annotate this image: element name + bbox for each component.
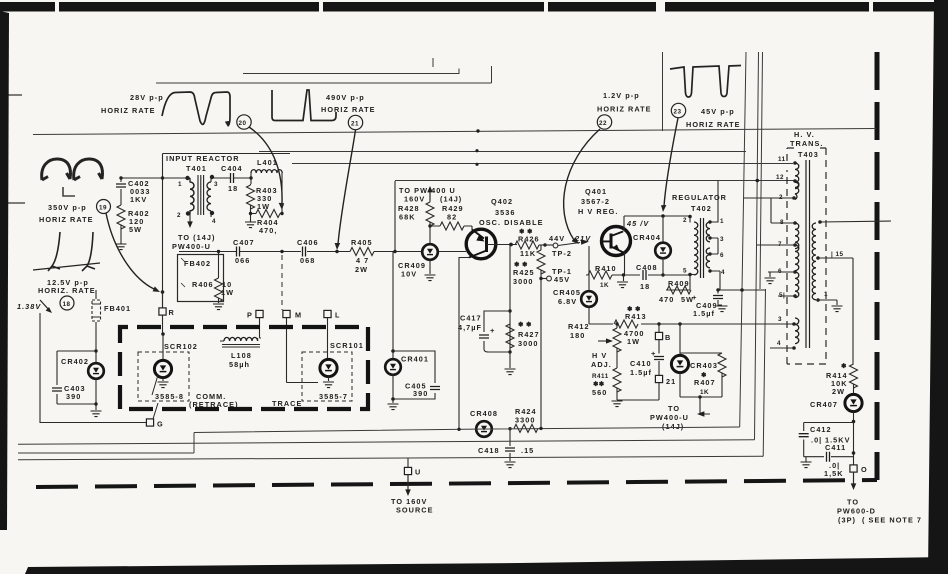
svg-text:19: 19 (99, 205, 107, 212)
svg-text:28V p-p: 28V p-p (130, 93, 164, 102)
svg-text:H V: H V (592, 351, 607, 360)
svg-text:(3P): (3P) (838, 516, 856, 525)
svg-text:2W: 2W (832, 387, 845, 396)
svg-text:C406: C406 (297, 238, 319, 247)
svg-text:3: 3 (214, 181, 218, 188)
svg-text:P: P (247, 311, 253, 320)
svg-text:REGULATOR: REGULATOR (672, 193, 727, 202)
svg-text:C412: C412 (810, 425, 832, 434)
svg-text:L401: L401 (257, 158, 278, 167)
svg-text:FB402: FB402 (184, 259, 211, 268)
svg-text:R409: R409 (668, 279, 690, 288)
svg-text:490V p-p: 490V p-p (326, 93, 365, 102)
svg-text:068: 068 (300, 256, 315, 265)
svg-text:3000: 3000 (518, 339, 538, 348)
svg-text:HORIZ RATE: HORIZ RATE (39, 215, 94, 224)
svg-text:3300: 3300 (515, 416, 535, 425)
svg-text:SOURCE: SOURCE (396, 506, 434, 515)
svg-text:| 15: | 15 (831, 251, 844, 258)
svg-text:350V p-p: 350V p-p (48, 203, 87, 212)
svg-text:1W: 1W (221, 288, 234, 297)
svg-text:1: 1 (178, 181, 182, 188)
svg-text:6: 6 (720, 252, 724, 259)
svg-text:R412: R412 (568, 322, 590, 331)
svg-text:TO (14J): TO (14J) (178, 233, 215, 242)
svg-text:M: M (295, 311, 302, 320)
svg-text:C417: C417 (460, 314, 482, 323)
svg-text:(14J): (14J) (440, 195, 462, 204)
svg-text:23: 23 (674, 109, 682, 116)
svg-text:HORIZ RATE: HORIZ RATE (686, 120, 741, 129)
svg-text:SCR101: SCR101 (330, 341, 364, 350)
svg-text:TRANS.: TRANS. (790, 139, 823, 148)
svg-text:390: 390 (413, 389, 428, 398)
svg-text:CR403: CR403 (690, 361, 718, 370)
svg-text:T402: T402 (691, 204, 712, 213)
svg-text:G: G (157, 420, 164, 429)
svg-text:R426: R426 (518, 235, 540, 244)
svg-text:TP-2: TP-2 (552, 249, 572, 258)
svg-text:58µh: 58µh (229, 360, 250, 369)
svg-text:Q401: Q401 (585, 187, 607, 196)
svg-text:H. V.: H. V. (794, 130, 815, 139)
svg-text:45 /V: 45 /V (626, 219, 649, 228)
svg-text:4: 4 (721, 269, 725, 276)
svg-text:CR408: CR408 (470, 409, 498, 418)
svg-text:1.5µf: 1.5µf (693, 309, 715, 318)
svg-text:18: 18 (228, 184, 238, 193)
svg-text:1K: 1K (700, 389, 709, 396)
svg-text:1KV: 1KV (130, 195, 147, 204)
svg-text:C410: C410 (630, 359, 652, 368)
svg-text:5: 5 (683, 268, 687, 275)
svg-text:TO: TO (847, 498, 859, 507)
svg-text:1: 1 (824, 291, 828, 298)
svg-text:44V: 44V (549, 234, 565, 243)
svg-text:45V: 45V (554, 275, 570, 284)
svg-text:4,7µF: 4,7µF (458, 323, 482, 332)
svg-text:11: 11 (778, 156, 786, 163)
svg-text:3: 3 (778, 316, 782, 323)
svg-text:SCR102: SCR102 (164, 342, 198, 351)
svg-text:4 7: 4 7 (356, 256, 369, 265)
svg-text:3536: 3536 (495, 208, 515, 217)
svg-text:INPUT REACTOR: INPUT REACTOR (166, 154, 240, 163)
svg-text:12: 12 (776, 174, 784, 181)
svg-text:390: 390 (66, 392, 81, 401)
svg-text:Q402: Q402 (491, 197, 513, 206)
svg-text:560: 560 (592, 388, 607, 397)
svg-text:PW600-D: PW600-D (837, 507, 876, 516)
svg-text:OSC. DISABLE: OSC. DISABLE (479, 218, 544, 227)
svg-text:470,: 470, (259, 226, 277, 235)
svg-text:180: 180 (570, 331, 585, 340)
svg-text:C404: C404 (221, 164, 243, 173)
svg-text:1.5µf: 1.5µf (630, 368, 652, 377)
svg-text:3585-8: 3585-8 (155, 392, 184, 401)
svg-text:CR402: CR402 (61, 357, 89, 366)
svg-text:TO: TO (668, 404, 680, 413)
svg-text:2W: 2W (355, 265, 368, 274)
svg-text:R: R (169, 308, 175, 317)
svg-text:ADJ.: ADJ. (591, 360, 612, 369)
svg-text:H V REG.: H V REG. (578, 207, 618, 216)
svg-text:HORIZ. RATE: HORIZ. RATE (38, 286, 96, 295)
svg-text:C408: C408 (636, 263, 658, 272)
svg-text:5W: 5W (129, 225, 142, 234)
svg-text:68K: 68K (399, 213, 416, 222)
svg-text:R405: R405 (351, 238, 373, 247)
svg-text:18: 18 (640, 282, 650, 291)
svg-text:R407: R407 (694, 378, 716, 387)
svg-text:2: 2 (683, 217, 687, 224)
svg-text:(RETRACE): (RETRACE) (189, 400, 239, 409)
svg-text:21: 21 (351, 121, 359, 128)
svg-text:CR405: CR405 (553, 288, 581, 297)
svg-text:3: 3 (720, 236, 724, 243)
svg-text:3567-2: 3567-2 (581, 197, 610, 206)
svg-text:.15: .15 (521, 446, 534, 455)
svg-text:C407: C407 (233, 238, 255, 247)
svg-text:22: 22 (599, 120, 607, 127)
svg-text:HORIZ RATE: HORIZ RATE (321, 105, 376, 114)
svg-text:L108: L108 (231, 351, 252, 360)
svg-text:U: U (415, 468, 421, 477)
svg-text:066: 066 (235, 256, 250, 265)
svg-text:✽ ✽: ✽ ✽ (518, 322, 532, 329)
svg-text:18: 18 (63, 301, 71, 308)
svg-text:160V: 160V (404, 195, 425, 204)
svg-text:+: + (490, 326, 495, 335)
svg-text:21: 21 (666, 377, 676, 386)
svg-text:✽✽: ✽✽ (593, 381, 605, 388)
svg-text:CR404: CR404 (633, 233, 661, 242)
svg-text:1.2V p-p: 1.2V p-p (603, 91, 640, 100)
svg-text:FB401: FB401 (104, 304, 131, 313)
svg-text:.0|: .0| (811, 436, 822, 445)
svg-text:( SEE NOTE 7: ( SEE NOTE 7 (862, 516, 922, 525)
svg-text:R427: R427 (518, 330, 540, 339)
svg-text:11K: 11K (520, 249, 536, 258)
svg-text:T403: T403 (798, 150, 819, 159)
svg-text:O: O (861, 465, 868, 474)
svg-text:1,5K: 1,5K (824, 469, 844, 478)
svg-text:6.8V: 6.8V (558, 297, 577, 306)
svg-text:CR407: CR407 (810, 400, 838, 409)
svg-text:PW400-U: PW400-U (650, 413, 689, 422)
svg-text:3585-7: 3585-7 (319, 392, 348, 401)
svg-text:1W: 1W (627, 337, 640, 346)
svg-text:82: 82 (447, 213, 457, 222)
svg-text:✽: ✽ (841, 363, 847, 370)
svg-text:CR401: CR401 (401, 355, 429, 364)
svg-text:4: 4 (777, 340, 781, 347)
svg-text:R406: R406 (192, 280, 214, 289)
svg-text:C418: C418 (478, 446, 500, 455)
svg-text:2: 2 (177, 212, 181, 219)
svg-text:B: B (665, 333, 671, 342)
svg-text:1: 1 (720, 218, 724, 225)
svg-text:PW400-U: PW400-U (172, 242, 211, 251)
svg-text:1W: 1W (257, 202, 270, 211)
svg-text:T401: T401 (186, 164, 207, 173)
svg-text:HORIZ RATE: HORIZ RATE (597, 105, 652, 114)
svg-text:470: 470 (659, 295, 674, 304)
svg-text:20: 20 (239, 120, 247, 127)
svg-text:1.38V: 1.38V (17, 302, 41, 311)
svg-text:(14J): (14J) (662, 422, 684, 431)
svg-text:TRACE: TRACE (272, 399, 302, 408)
svg-text:R425: R425 (513, 268, 535, 277)
svg-text:C411: C411 (825, 443, 846, 452)
svg-text:3000: 3000 (513, 277, 533, 286)
svg-text:1K: 1K (600, 282, 609, 289)
svg-text:L: L (335, 311, 341, 320)
svg-text:45V p-p: 45V p-p (701, 107, 735, 116)
svg-text:R411: R411 (592, 373, 609, 380)
svg-text:R413: R413 (625, 312, 647, 321)
svg-text:HORIZ RATE: HORIZ RATE (101, 106, 156, 115)
svg-text:10V: 10V (401, 270, 417, 279)
svg-text:4: 4 (212, 218, 216, 225)
